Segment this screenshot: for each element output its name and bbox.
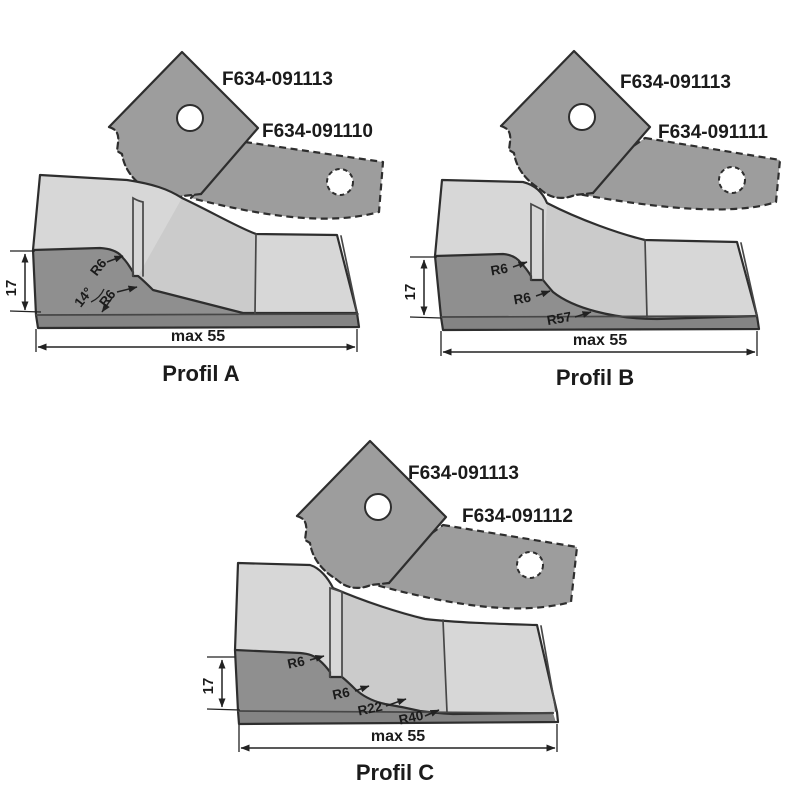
height-dimension-value: 17 <box>405 284 419 301</box>
radius-label-1: R6 <box>489 261 509 279</box>
profile-title: Profil C <box>356 760 434 785</box>
side-knife-hole <box>719 167 745 193</box>
side-knife-hole <box>517 552 543 578</box>
diamond-knife-hole <box>365 494 391 520</box>
knife-top-part-number: F634-091113 <box>222 69 333 90</box>
knife-top-part-number: F634-091113 <box>408 463 519 484</box>
catalog-figure: 17 max 55 R6 14° R6 F634-091113 F634-091… <box>0 0 800 800</box>
diamond-knife-hole <box>569 104 595 130</box>
width-dimension-value: max 55 <box>171 328 225 345</box>
radius-label-2: R6 <box>512 290 532 308</box>
width-dimension-value: max 55 <box>371 728 425 745</box>
profil-c-diagram: 17 max 55 R6 R6 R22 R40 F634-091113 F634… <box>185 430 595 800</box>
profil-a-diagram: 17 max 55 R6 14° R6 F634-091113 F634-091… <box>5 30 395 405</box>
knife-side-part-number: F634-091111 <box>658 122 768 143</box>
knife-side-part-number: F634-091110 <box>262 121 373 142</box>
side-knife-hole <box>327 169 353 195</box>
height-dimension-value: 17 <box>5 280 20 297</box>
knife-top-part-number: F634-091113 <box>620 72 731 93</box>
profile-title: Profil A <box>162 361 240 386</box>
workpiece-bottom-edge <box>36 314 359 328</box>
profil-b-diagram: 17 max 55 R6 R6 R57 F634-091113 F634-091… <box>405 30 795 405</box>
knife-side-part-number: F634-091112 <box>462 506 573 527</box>
height-dimension-value: 17 <box>200 678 217 695</box>
width-dimension-value: max 55 <box>573 332 627 349</box>
profile-title: Profil B <box>556 365 634 390</box>
diamond-knife-hole <box>177 105 203 131</box>
